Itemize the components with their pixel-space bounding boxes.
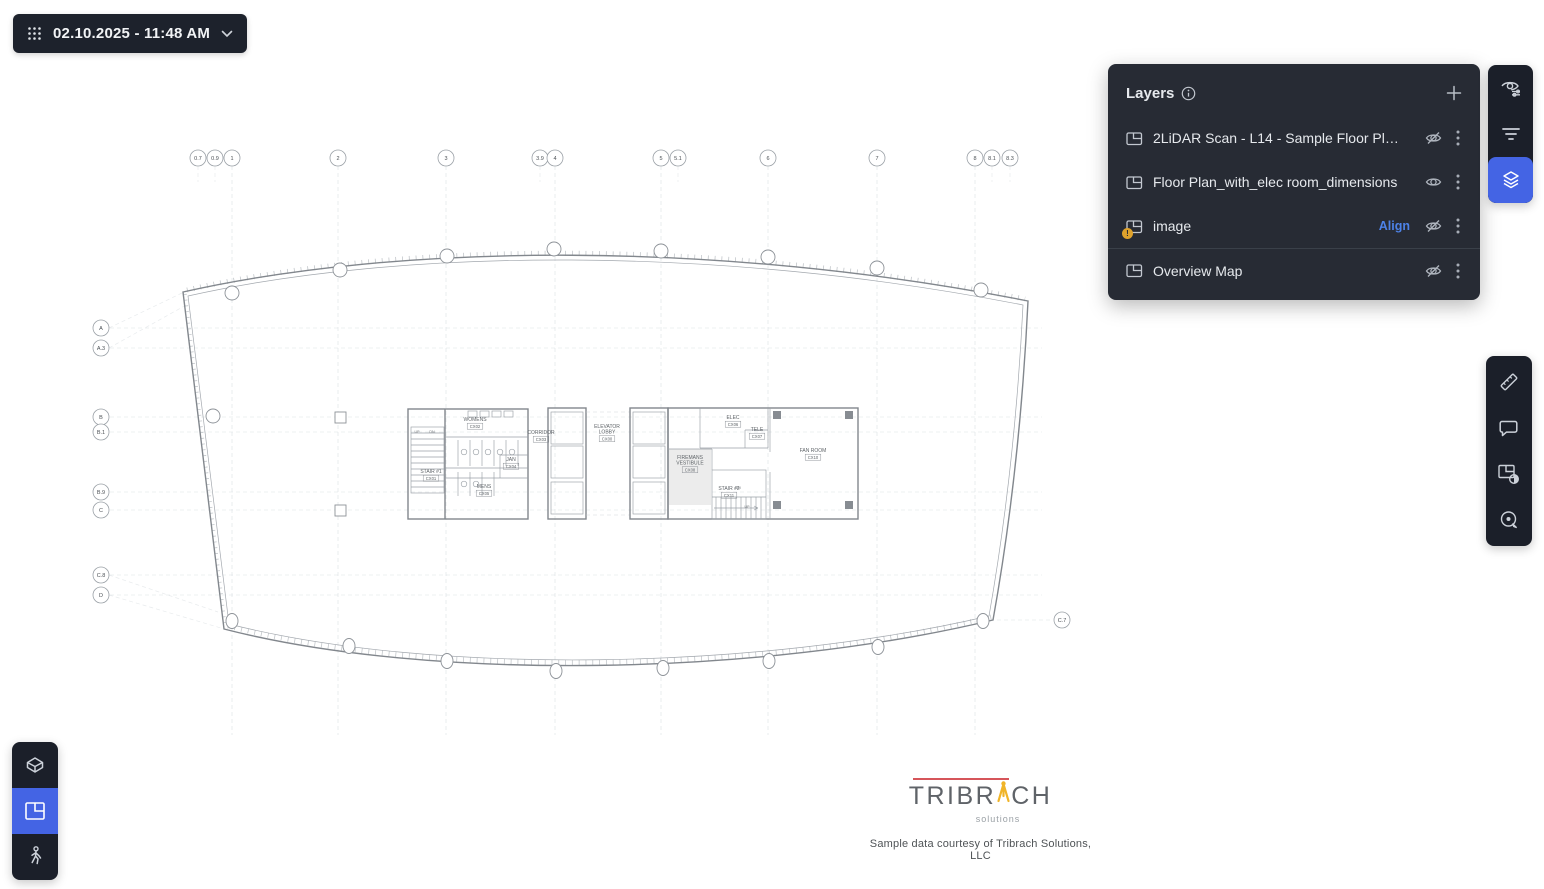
- sample-data-caption: Sample data courtesy of Tribrach Solutio…: [858, 838, 1103, 862]
- svg-text:5.1: 5.1: [674, 156, 682, 162]
- svg-text:8.1: 8.1: [988, 156, 996, 162]
- layer-row-lidar-scan[interactable]: 2LiDAR Scan - L14 - Sample Floor Plan.76: [1108, 116, 1480, 160]
- layer-row-floor-plan[interactable]: Floor Plan_with_elec room_dimensions: [1108, 160, 1480, 204]
- grid-leader-lines: [109, 293, 1053, 628]
- layer-menu-button[interactable]: [1454, 218, 1462, 234]
- layer-visibility-toggle[interactable]: [1422, 216, 1444, 236]
- filter-icon: [1501, 126, 1521, 142]
- grid-dots-icon: [27, 26, 42, 41]
- svg-text:JAN: JAN: [506, 457, 516, 463]
- svg-text:CX01: CX01: [426, 476, 437, 481]
- layer-name: Floor Plan_with_elec room_dimensions: [1153, 174, 1397, 190]
- svg-text:0.9: 0.9: [211, 156, 219, 162]
- floor-plan-drawing[interactable]: WOMENSCX02STAIR #1CX01MENSCX05JANCX04COR…: [0, 0, 1100, 800]
- view-options-toolbar: [1488, 65, 1533, 203]
- svg-text:CX08: CX08: [685, 467, 696, 472]
- tribrach-logo: TRIBR CH solutions: [909, 780, 1053, 832]
- svg-text:CX07: CX07: [752, 434, 763, 439]
- snapshot-date-label: 02.10.2025 - 11:48 AM: [53, 25, 210, 42]
- layer-visibility-toggle[interactable]: [1422, 172, 1444, 192]
- kebab-icon: [1456, 218, 1460, 234]
- eye-off-icon: [1423, 216, 1444, 236]
- svg-text:TELE: TELE: [751, 427, 764, 433]
- comment-button[interactable]: [1486, 405, 1532, 451]
- kebab-icon: [1456, 130, 1460, 146]
- svg-text:WOMENS: WOMENS: [463, 417, 487, 423]
- svg-text:2: 2: [336, 156, 339, 162]
- layer-row-image[interactable]: image Align: [1108, 204, 1480, 248]
- layer-menu-button[interactable]: [1454, 174, 1462, 190]
- logo-red-line: [913, 778, 1009, 780]
- kebab-icon: [1456, 263, 1460, 279]
- layer-row-overview-map[interactable]: Overview Map: [1108, 248, 1480, 292]
- view-settings-button[interactable]: [1488, 65, 1533, 111]
- layers-panel-title: Layers: [1126, 85, 1174, 102]
- app-root: { "datebar": { "label": "02.10.2025 - 11…: [0, 0, 1544, 889]
- svg-text:MENS: MENS: [477, 484, 492, 490]
- annotate-icon: [1498, 509, 1520, 531]
- tripod-icon: [995, 780, 1012, 804]
- svg-text:B.1: B.1: [97, 430, 105, 436]
- view-3d-icon: [23, 753, 47, 777]
- svg-text:A: A: [99, 326, 103, 332]
- room-labels: WOMENSCX02STAIR #1CX01MENSCX05JANCX04COR…: [420, 415, 826, 498]
- layer-name: 2LiDAR Scan - L14 - Sample Floor Plan.76: [1153, 130, 1402, 146]
- layer-thumbnail-icon: [1126, 131, 1143, 146]
- eye-off-icon: [1423, 261, 1444, 281]
- svg-text:0.7: 0.7: [194, 156, 202, 162]
- svg-text:CX02: CX02: [470, 424, 481, 429]
- svg-text:CX10: CX10: [808, 455, 819, 460]
- svg-text:DN: DN: [429, 430, 435, 434]
- svg-text:8.3: 8.3: [1006, 156, 1014, 162]
- chevron-down-icon: [221, 30, 233, 38]
- annotation-toolbar: [1486, 356, 1532, 546]
- kebab-icon: [1456, 174, 1460, 190]
- svg-text:FAN ROOM: FAN ROOM: [800, 448, 827, 454]
- layer-name: image: [1153, 218, 1191, 234]
- svg-text:STAIR #1: STAIR #1: [420, 469, 442, 475]
- svg-text:UP: UP: [745, 505, 751, 509]
- layer-thumbnail-icon: [1126, 175, 1143, 190]
- measure-button[interactable]: [1486, 359, 1532, 405]
- warning-badge-icon: [1122, 228, 1133, 239]
- annotate-button[interactable]: [1486, 497, 1532, 543]
- svg-text:D: D: [99, 593, 103, 599]
- layers-icon: [1500, 169, 1522, 191]
- layers-button[interactable]: [1488, 157, 1533, 203]
- svg-text:LOBBY: LOBBY: [599, 430, 616, 436]
- layers-panel-header: Layers: [1108, 80, 1480, 106]
- svg-text:B.9: B.9: [97, 490, 105, 496]
- grid-lines: [110, 166, 1042, 735]
- layer-menu-button[interactable]: [1454, 263, 1462, 279]
- walkthrough-icon: [24, 845, 46, 869]
- info-icon[interactable]: [1181, 86, 1196, 101]
- eye-off-icon: [1423, 128, 1444, 148]
- layer-thumbnail-icon: [1126, 219, 1143, 234]
- svg-text:C: C: [99, 508, 103, 514]
- column-markers: [206, 242, 989, 679]
- svg-text:CX00: CX00: [602, 436, 613, 441]
- floor-plan-icon: [23, 800, 47, 822]
- layer-thumbnail-icon: [1126, 263, 1143, 278]
- floor-plan-button[interactable]: [12, 788, 58, 834]
- svg-text:1: 1: [230, 156, 233, 162]
- compare-icon: [1497, 463, 1521, 485]
- svg-text:CX11: CX11: [724, 493, 735, 498]
- view-settings-icon: [1499, 77, 1523, 99]
- svg-text:ELEC: ELEC: [726, 415, 739, 421]
- add-layer-button[interactable]: [1446, 85, 1462, 101]
- filter-button[interactable]: [1488, 111, 1533, 157]
- layer-visibility-toggle[interactable]: [1422, 261, 1444, 281]
- view-mode-toolbar: [12, 742, 58, 880]
- layer-menu-button[interactable]: [1454, 130, 1462, 146]
- svg-text:8: 8: [973, 156, 976, 162]
- eye-icon: [1423, 172, 1444, 192]
- svg-text:DN: DN: [735, 486, 741, 490]
- svg-text:C.7: C.7: [1058, 618, 1067, 624]
- layer-visibility-toggle[interactable]: [1422, 128, 1444, 148]
- grid-bubbles: 0.70.91233.9455.16788.18.3AA.3BB.1B.9CC.…: [93, 150, 1070, 628]
- svg-text:CX06: CX06: [728, 422, 739, 427]
- svg-text:CORRIDOR: CORRIDOR: [527, 430, 555, 436]
- svg-text:3: 3: [444, 156, 447, 162]
- svg-text:CX05: CX05: [479, 491, 490, 496]
- building-outline: [183, 253, 1028, 665]
- layers-panel: Layers 2LiDAR Scan - L14 - Sample Floor …: [1108, 64, 1480, 300]
- compare-button[interactable]: [1486, 451, 1532, 497]
- measure-icon: [1498, 371, 1520, 393]
- svg-text:A.3: A.3: [97, 346, 105, 352]
- svg-text:B: B: [99, 415, 103, 421]
- svg-text:3.9: 3.9: [536, 156, 544, 162]
- svg-text:CX04: CX04: [506, 464, 517, 469]
- svg-text:4: 4: [553, 156, 556, 162]
- layer-name: Overview Map: [1153, 263, 1242, 279]
- comment-icon: [1498, 418, 1520, 438]
- svg-text:7: 7: [875, 156, 878, 162]
- svg-text:CX03: CX03: [536, 437, 547, 442]
- view-3d-button[interactable]: [12, 742, 58, 788]
- svg-text:VESTIBULE: VESTIBULE: [676, 461, 704, 467]
- svg-text:C.8: C.8: [97, 573, 106, 579]
- svg-text:6: 6: [766, 156, 769, 162]
- align-link[interactable]: Align: [1379, 219, 1410, 233]
- attribution-block: TRIBR CH solutions Sample data courtesy …: [858, 780, 1103, 862]
- svg-text:UP: UP: [415, 430, 421, 434]
- walkthrough-button[interactable]: [12, 834, 58, 880]
- snapshot-date-button[interactable]: 02.10.2025 - 11:48 AM: [13, 14, 247, 53]
- svg-text:5: 5: [659, 156, 662, 162]
- plus-icon: [1446, 85, 1462, 101]
